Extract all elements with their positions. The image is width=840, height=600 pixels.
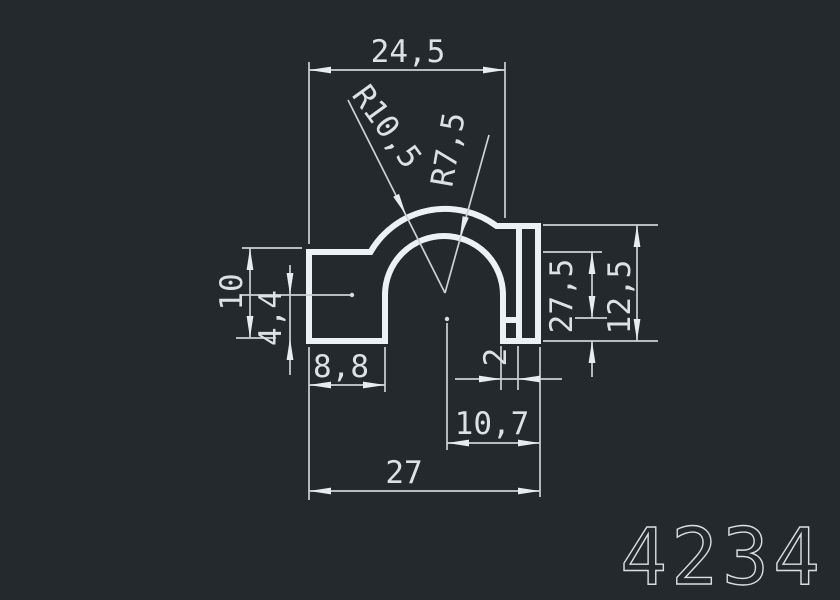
dim-total-width: 27 xyxy=(385,455,422,491)
dim-top-width: 24,5 xyxy=(371,34,446,70)
dim-left-wall-height: 4,4 xyxy=(253,290,289,346)
dim-right-height: 12,5 xyxy=(602,260,638,335)
dim-right-step-height: 27,5 xyxy=(544,259,580,334)
part-number-label: 4234 xyxy=(620,513,824,600)
dim-left-foot-width: 8,8 xyxy=(313,349,369,385)
cad-viewport: 24,5 R10,5 R7,5 10 4,4 8,8 27,5 12,5 2 1… xyxy=(0,0,840,600)
technical-drawing: 24,5 R10,5 R7,5 10 4,4 8,8 27,5 12,5 2 1… xyxy=(0,0,840,600)
dim-center-to-right: 10,7 xyxy=(455,406,530,442)
dim-left-height: 10 xyxy=(214,273,250,310)
dim-slot-width: 2 xyxy=(478,348,514,367)
drawing-background xyxy=(0,0,840,600)
